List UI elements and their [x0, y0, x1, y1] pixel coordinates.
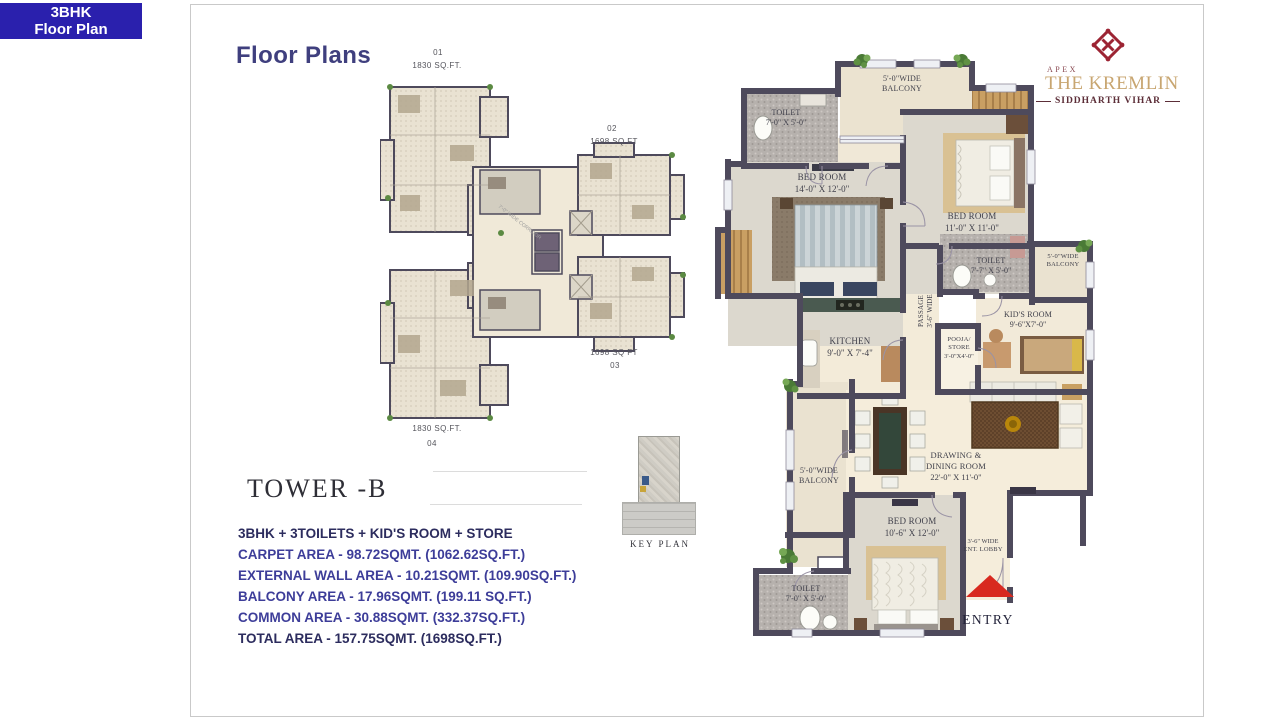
room-label-drawing-dining: DRAWING & DINING ROOM 22'-0" X 11'-0" — [910, 450, 1002, 483]
carpet-area: CARPET AREA - 98.72SQMT. (1062.62SQ.FT.) — [238, 544, 576, 565]
unit-configuration: 3BHK + 3TOILETS + KID'S ROOM + STORE — [238, 523, 576, 544]
tower-info-block: 3BHK + 3TOILETS + KID'S ROOM + STORE CAR… — [238, 523, 576, 649]
corner-badge: 3BHK Floor Plan — [0, 3, 142, 39]
room-label-kids-room: KID'S ROOM 9'-6"X7'-0" — [980, 310, 1076, 331]
key-plan-tower — [638, 436, 680, 504]
total-area: TOTAL AREA - 157.75SQMT. (1698SQ.FT.) — [238, 628, 576, 649]
key-plan-highlight-2 — [640, 486, 646, 492]
tower-unit-01-id: 01 — [428, 48, 448, 57]
room-label-kitchen: KITCHEN 9'-0" X 7'-4" — [800, 336, 900, 359]
tower-unit-01-area: 1830 SQ.FT. — [404, 61, 470, 70]
page-title: Floor Plans — [236, 42, 371, 70]
floor-plan-slide: 3BHK Floor Plan Floor Plans APEX THE KRE… — [0, 0, 1280, 720]
room-label-toilet-right: TOILET 7'-7" X 5'-0" — [950, 256, 1032, 277]
tower-name: TOWER -B — [247, 474, 387, 504]
tower-unit-03-id: 03 — [605, 361, 625, 370]
key-plan-base — [622, 502, 696, 535]
divider-line-1 — [433, 471, 587, 472]
tower-unit-04-id: 04 — [422, 439, 442, 448]
tower-cluster-plan: 7'-0" WIDE CORRIDOR — [380, 45, 695, 430]
key-plan-highlight — [642, 476, 649, 485]
dash-right — [1165, 101, 1180, 102]
room-label-bedroom-bottom: BED ROOM 10'-6" X 12'-0" — [862, 516, 962, 539]
room-label-pooja: POOJA/ STORE 3'-0"X4'-0" — [938, 336, 980, 361]
room-label-toilet-bottom: TOILET 7'-0" X 5'-0" — [766, 584, 846, 605]
room-label-lobby: 3'-6" WIDE ENT. LOBBY — [956, 538, 1010, 555]
entry-label: ENTRY — [958, 612, 1018, 628]
room-label-balcony-left: 5'-0"WIDE BALCONY — [786, 466, 852, 487]
divider-line-2 — [430, 504, 582, 505]
unit-floor-plan — [700, 50, 1100, 662]
balcony-area: BALCONY AREA - 17.96SQMT. (199.11 SQ.FT.… — [238, 586, 576, 607]
key-plan-label: KEY PLAN — [625, 539, 695, 549]
room-label-balcony-top: 5'-0"WIDE BALCONY — [862, 74, 942, 95]
tower-unit-02-area: 1698 SQ FT — [582, 137, 646, 146]
room-label-toilet-top: TOILET 7'-0" X 5'-0" — [748, 108, 824, 129]
tower-unit-02-id: 02 — [602, 124, 622, 133]
badge-line2: Floor Plan — [0, 21, 142, 38]
external-wall-area: EXTERNAL WALL AREA - 10.21SQMT. (109.90S… — [238, 565, 576, 586]
room-label-bedroom-right: BED ROOM 11'-0" X 11'-0" — [922, 211, 1022, 234]
badge-line1: 3BHK — [0, 4, 142, 21]
tower-unit-04-area: 1830 SQ.FT. — [404, 424, 470, 433]
common-area: COMMON AREA - 30.88SQMT. (332.37SQ.FT.) — [238, 607, 576, 628]
room-label-passage: PASSAGE 3'-6" WIDE — [917, 282, 937, 340]
room-label-balcony-right: 5'-0"WIDE BALCONY — [1038, 253, 1088, 270]
tower-unit-03-area: 1698 SQ FT — [582, 348, 646, 357]
room-label-bedroom-master: BED ROOM 14'-0" X 12'-0" — [762, 172, 882, 195]
